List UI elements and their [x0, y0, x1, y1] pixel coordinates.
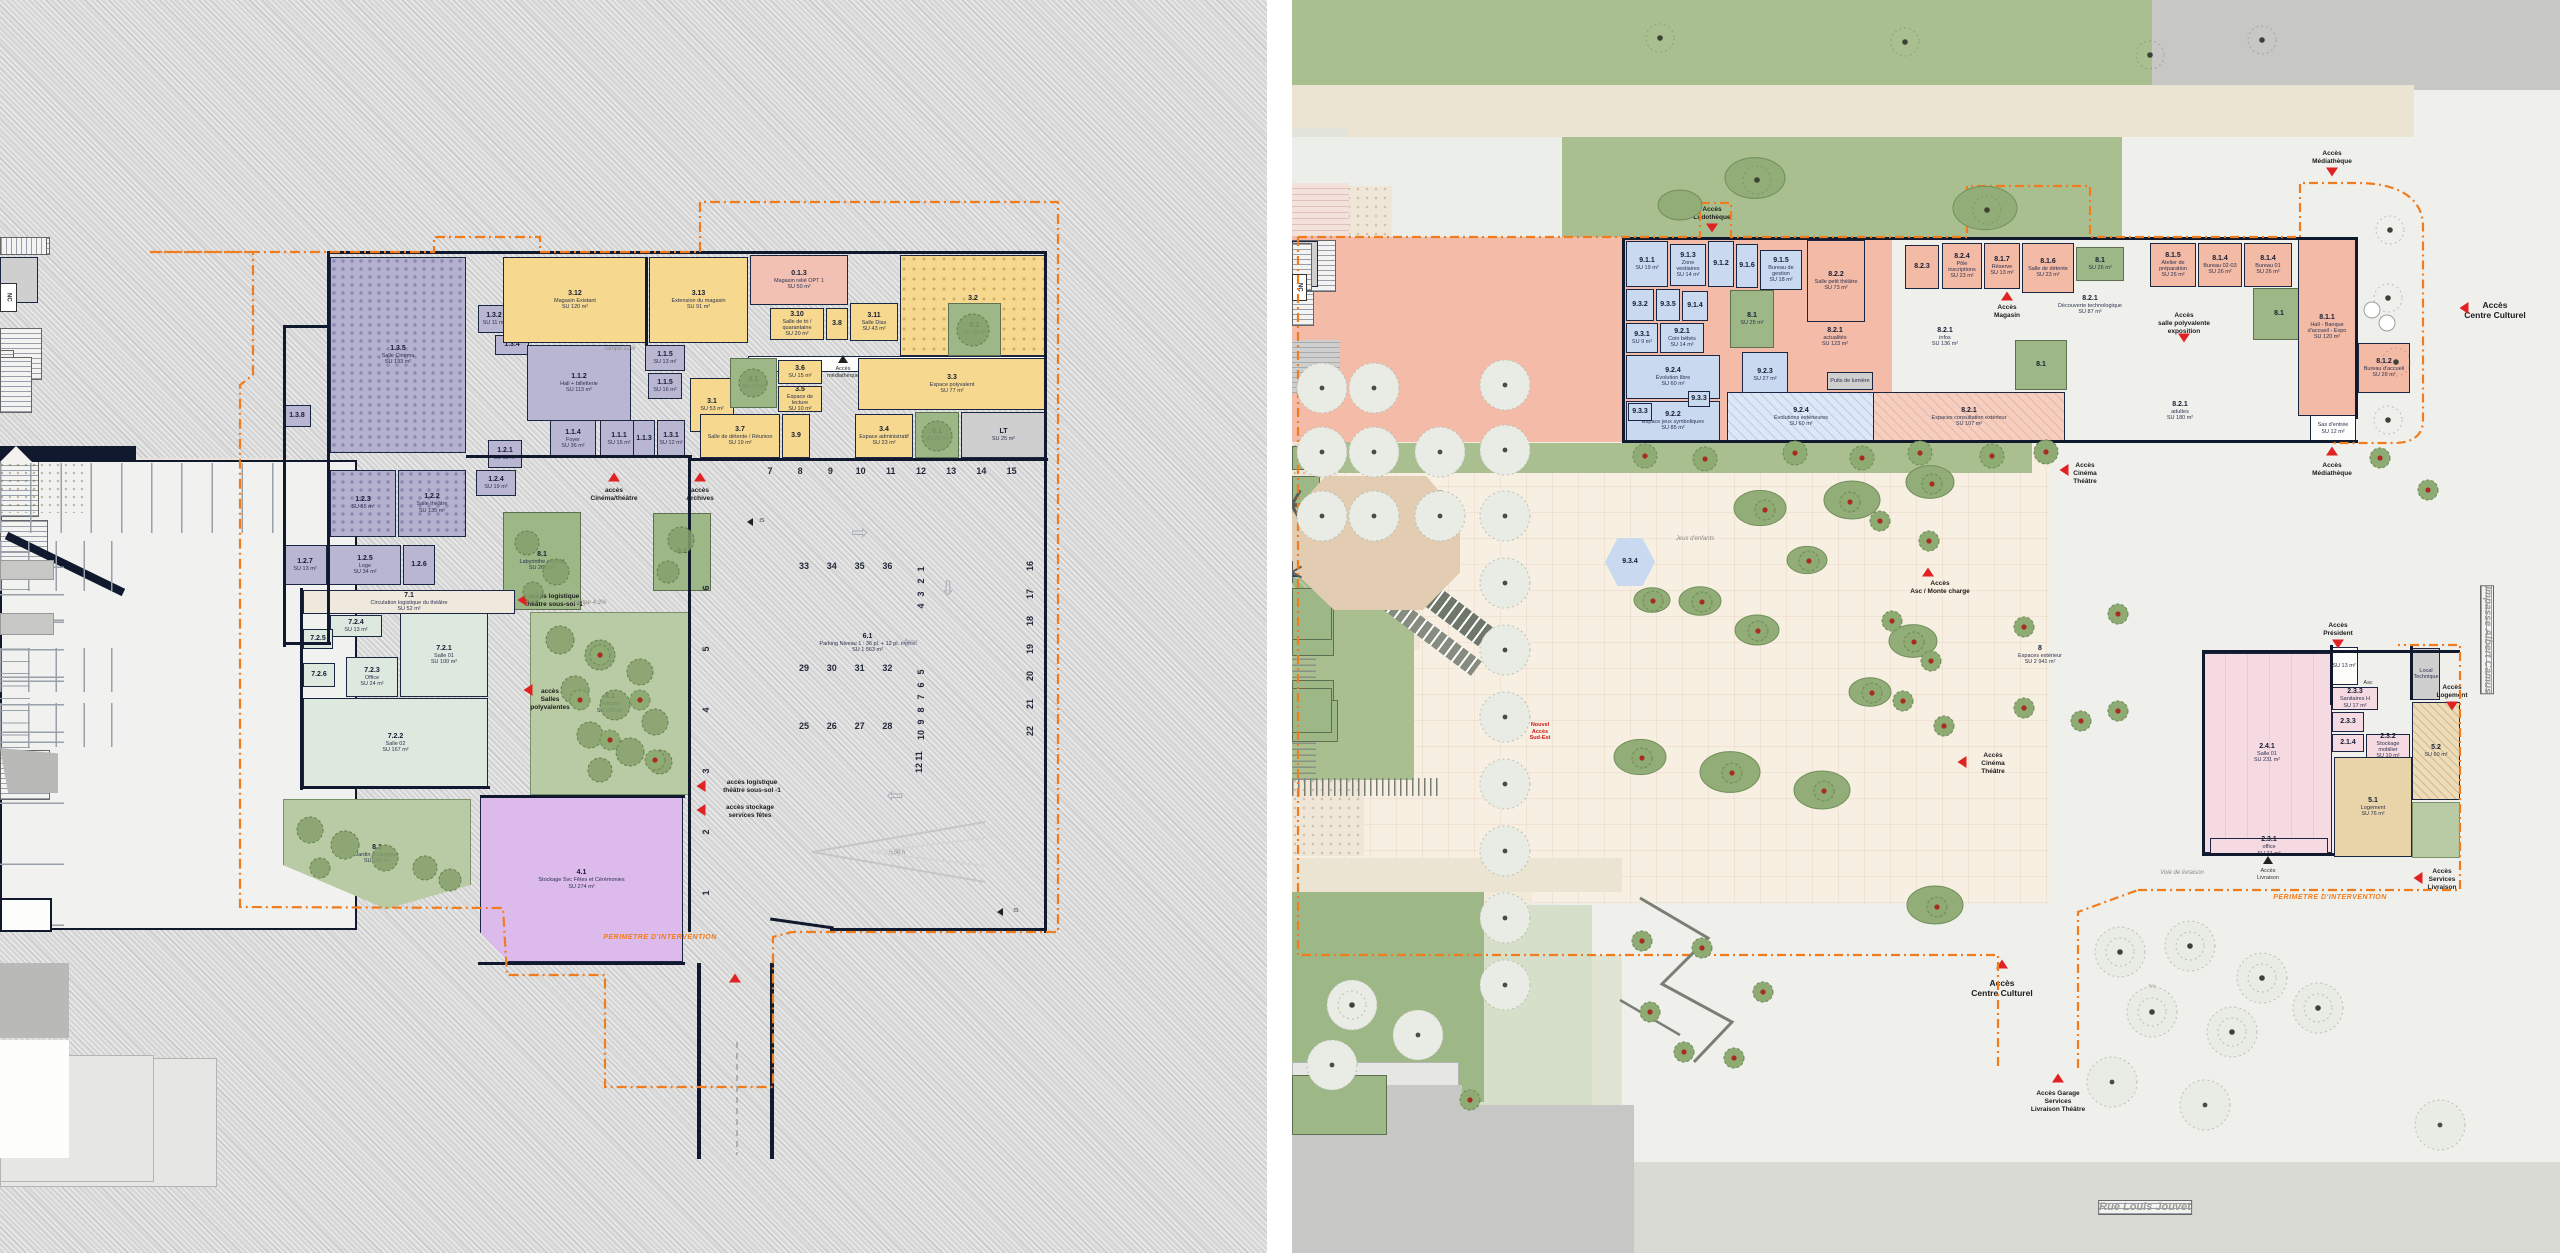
room-label-name: Salle Dias [862, 320, 887, 326]
play-structure-icon [1292, 561, 1303, 583]
tree-icon [2374, 406, 2402, 434]
panel-divider [1267, 0, 1292, 1253]
room-b915: 9.1.5Bureau de gestionSU 18 m² [1760, 250, 1802, 290]
room-label-area: SU 76 m² [2361, 811, 2385, 817]
room-label-area: SU 27 m² [1753, 376, 1776, 382]
room-label-area: SU 10 m² [779, 406, 821, 412]
room-label-area: SU 274 m² [538, 884, 624, 890]
room-s232: 2.3.2Stockage mobilierSU 10 m² [2366, 734, 2410, 758]
room-label-area: SU 12 m² [659, 440, 682, 446]
room-label-name: Puits de lumière [1830, 378, 1869, 384]
room-label-area: SU 26 m² [925, 436, 948, 442]
room-r115a: 1.1.5SU 13 m² [645, 345, 685, 371]
room-patM: 8.1SU 26 m² [2076, 247, 2124, 281]
room-label-area: SU 60 m² [1656, 381, 1691, 387]
room-label-area: SU 60 m² [1774, 421, 1828, 427]
tree-icon [2138, 998, 2166, 1026]
hatch-strip [0, 560, 54, 580]
room-label-id: 7.2.1 [431, 645, 457, 653]
room-label-id: 3.7 [708, 426, 773, 434]
room-label-name: Salle 01 [2254, 751, 2280, 757]
room-label-area: SU 15 m² [788, 373, 811, 379]
tree-icon [2293, 983, 2343, 1033]
room-label-area: SU 12 m² [2318, 429, 2349, 435]
room-label-area: SU 60 m² [2424, 752, 2447, 758]
label-acces_log2: accès logistique théâtre sous-sol -1 [723, 779, 781, 795]
room-label-area: SU 23 m² [1943, 273, 1981, 279]
room-label-id: 1.2.6 [411, 561, 427, 569]
room-s817: 8.1.7RéserveSU 13 m² [1984, 243, 2020, 289]
room-label-id: 1.1.5 [653, 351, 676, 359]
room-label-name: Jardin écologique [355, 852, 398, 858]
label-acc_serv: Accès Services Livraison [2428, 868, 2457, 891]
parking-number: 18 [1025, 616, 1035, 626]
access-triangle-icon [838, 355, 848, 363]
room-label-area: SU 77 m² [930, 388, 975, 394]
parking-number: 8 [798, 466, 803, 476]
room-label-name: Salle de détente / Réunion [708, 434, 773, 440]
wall [688, 458, 691, 932]
room-label-area: SU 15 m² [607, 440, 630, 446]
room-b935: 9.3.5 [1656, 289, 1680, 321]
parking-number: 6 [916, 682, 926, 687]
room-label-id: 3.6 [788, 365, 811, 373]
room-r127: 1.2.7SU 13 m² [283, 545, 327, 585]
parking-number: 2 [701, 829, 711, 834]
room-label-name: adultes [2167, 409, 2193, 415]
room-y313: 3.13Extension du magasinSU 91 m² [649, 257, 748, 343]
access-triangle-icon [1706, 224, 1718, 233]
parking-number: 27 [855, 721, 865, 731]
room-s811: 8.1.1Hall - Banque d'accueil - ExpoSU 12… [2298, 238, 2356, 416]
planter [1292, 446, 1316, 470]
access-triangle-icon [697, 804, 706, 816]
room-y311: 3.11Salle DiasSU 43 m² [850, 303, 898, 341]
parking-number: 17 [1025, 588, 1035, 598]
garden-strip [1292, 443, 2032, 473]
room-b921: 9.2.1Coin bébésSU 14 m² [1660, 323, 1704, 353]
label-acc_ccE: Accès Centre Culturel [2464, 300, 2525, 320]
room-label-name: Salle 01 [431, 653, 457, 659]
wall [2355, 237, 2358, 419]
tree-icon [2218, 1018, 2246, 1046]
drive-arrow-icon: ⇩ [940, 576, 957, 600]
label-acc_garage: Accès Garage Services Livraison Théâtre [2031, 1090, 2085, 1113]
room-label-area: SU 26 m² [2088, 265, 2111, 271]
access-triangle-icon [524, 684, 533, 696]
room-label-id: 8.2.3 [1914, 263, 1930, 271]
basement-plan-panel: 1.3.5Salle CinémaSU 193 m²1.2.3SU 65 m²1… [0, 0, 1267, 1253]
room-label-name: Circulation logistique du théâtre [370, 600, 447, 606]
playground [1292, 476, 1460, 610]
room-s816: 8.1.6Salle de détenteSU 23 m² [2022, 243, 2074, 293]
room-sasS: Sas d'entréeSU 12 m² [2310, 415, 2356, 442]
room-s822: 8.2.2Salle petit théâtreSU 73 m² [1807, 240, 1865, 322]
room-label-id: 9.2.4 [1774, 407, 1828, 415]
wall [688, 458, 1048, 461]
parking-number: 9 [916, 720, 926, 725]
room-label-id: 8.1 [597, 693, 623, 701]
room-label-id: 8.1 [677, 548, 687, 556]
parking-number: 36 [882, 561, 892, 571]
balustrade [1292, 778, 1442, 796]
room-label-area: SU 120 m² [554, 304, 596, 310]
walk-north [1292, 85, 2414, 137]
room-label-area: SU 231 m² [2254, 757, 2280, 763]
parking-number: 32 [882, 663, 892, 673]
room-label-area: SU 19 m² [1635, 265, 1658, 271]
room-r112: 1.1.2Hall + billetterieSU 113 m² [527, 345, 631, 421]
hatch-strip [0, 613, 54, 635]
parking-number: 5 [701, 646, 711, 651]
label-perimetre: PERIMETRE D'INTERVENTION [2273, 894, 2387, 902]
access-triangle-icon [2052, 1074, 2064, 1083]
room-label-name: Salle de tri / quarantaine [771, 319, 823, 332]
room-label-name: Coin bébés [1668, 336, 1696, 342]
label-voie: Voie de livraison [2160, 870, 2204, 877]
room-patL: 8.1SU 25 m² [1730, 290, 1774, 348]
label-acc_medN: Accès Médiathèque [2312, 150, 2352, 166]
label-acc_asc: Accès Asc / Monte charge [1910, 580, 1970, 596]
parking-number: 6 [701, 585, 711, 590]
wall [478, 962, 685, 965]
room-r126: 1.2.6 [403, 545, 435, 585]
room-label-id: 9.1.2 [1713, 260, 1729, 268]
room-label-name: Espace administratif [859, 434, 909, 440]
room-label-id: 9.1.1 [1635, 257, 1658, 265]
room-label-id: 7.1 [370, 592, 447, 600]
room-label-id: 1.2.5 [353, 555, 376, 563]
room-label-name: Sanitaires H [2340, 696, 2370, 702]
room-label-area: SU 9 m² [1632, 339, 1652, 345]
room-label-area: SU 2 941 m² [2018, 659, 2062, 665]
room-b933a: 9.3.3 [1628, 403, 1652, 421]
room-g726: 7.2.6 [303, 663, 335, 687]
room-label-id: 0.1.3 [774, 270, 824, 278]
corridor-flare [0, 446, 32, 462]
room-label-name: Office [360, 675, 383, 681]
room-label-name: Évolution libre [1656, 375, 1691, 381]
room-label-name: Découverte technologique [2058, 303, 2122, 309]
wall [283, 325, 329, 328]
room-label-area: SU 26 m² [2151, 272, 2195, 278]
parking-number: 21 [1025, 698, 1035, 708]
room-label-area: SU 34 m² [353, 569, 376, 575]
access-triangle-icon [518, 594, 527, 606]
room-label-id: 3.12 [554, 290, 596, 298]
room-s821e: 8.2.1Espaces consultation extérieurSU 10… [1873, 392, 2065, 442]
room-label-id: 8.2.4 [1943, 253, 1981, 261]
room-b913: 9.1.3Zone vestiairesSU 14 m² [1670, 244, 1706, 286]
room-label-area: SU 135 m² [417, 508, 448, 514]
room-t52: 5.2SU 60 m² [2412, 702, 2460, 800]
dual-floor-plan-canvas: 1.3.5Salle CinémaSU 193 m²1.2.3SU 65 m²1… [0, 0, 2560, 1253]
room-label-area: SU 11 m² [483, 320, 506, 326]
room-label-area: SU 17 m² [2340, 703, 2370, 709]
wall [830, 928, 1047, 931]
room-p013: 0.1.3Magasin relié OPT 1SU 50 m² [750, 255, 848, 305]
room-label-area: SU 123 m² [1822, 341, 1848, 347]
parking-number: 33 [799, 561, 809, 571]
parking-number: 4 [701, 707, 711, 712]
room-label-name: Loge [353, 563, 376, 569]
room-label-id: 9.3.3 [1632, 408, 1648, 416]
room-label-area: SU 19 m² [708, 440, 773, 446]
room-s233a: 2.3.3Sanitaires HSU 17 m² [2332, 687, 2378, 710]
room-label-id: 8.2.2 [1815, 271, 1858, 279]
room-label-id: 9.3.2 [1632, 301, 1648, 309]
room-b933b: 9.3.3 [1688, 391, 1710, 407]
room-esp8: 8Espaces extérieurSU 2 941 m² [2000, 638, 2080, 672]
parking-number: 5 [916, 669, 926, 674]
room-label-id: 3.13 [671, 290, 725, 298]
room-label-area: SU 43 m² [862, 326, 887, 332]
tree-icon [1632, 931, 1652, 951]
parking-number: 3 [916, 591, 926, 596]
room-b924b: 9.2.4Évolutions extérieuresSU 60 m² [1727, 392, 1875, 442]
tree-icon [2087, 1057, 2137, 1107]
room-label-name: Espaces extérieur [2018, 653, 2062, 659]
room-label-area: SU 23 m² [859, 440, 909, 446]
room-label-id: 1.2.4 [484, 476, 507, 484]
room-label-area: SU 26 m² [2364, 372, 2405, 378]
label-acc_medS: Accès Médiathèque [2312, 462, 2352, 478]
room-label-id: 9.1.5 [1761, 257, 1801, 265]
tree-icon [2304, 994, 2332, 1022]
parking-number: 26 [827, 721, 837, 731]
wall [2410, 645, 2413, 700]
wall [2202, 650, 2205, 856]
access-triangle-icon [2060, 464, 2069, 476]
room-label-name: Espaces consultation extérieur [1932, 415, 2007, 421]
room-label-id: 7.2.2 [382, 733, 408, 741]
room-label-area: SU 18 m² [1761, 277, 1801, 283]
room-y33: 3.3Espace polyvalentSU 77 m² [858, 358, 1046, 410]
room-label-name: Atelier de préparation [2151, 260, 2195, 273]
access-triangle-icon [997, 908, 1003, 916]
wall [1622, 237, 2358, 240]
room-label-area: SU 113 m² [560, 387, 598, 393]
room-label-id: 8.1.4 [2203, 255, 2236, 263]
room-label-id: 8.1 [355, 844, 398, 852]
parking-number: 3 [701, 768, 711, 773]
room-r122: 1.2.2Salle théâtreSU 135 m² [398, 470, 466, 537]
parking-number: 8 [916, 707, 926, 712]
room-label-id: 8.1.1 [2299, 314, 2355, 322]
room-label-area: SU 87 m² [2058, 309, 2122, 315]
room-label-id: 2.3.3 [2340, 718, 2356, 726]
room-label-id: 3.3 [930, 374, 975, 382]
room-s824: 8.2.4Pôle inscriptionsSU 23 m² [1942, 243, 1982, 289]
room-label-area: SU 265 m² [520, 565, 565, 571]
label-perimetre: PERIMETRE D'INTERVENTION [603, 934, 717, 942]
exit-ramp [0, 963, 69, 1038]
room-label-name: Espace de lecture [779, 394, 821, 407]
tree-icon [2095, 927, 2145, 977]
room-label-name: Foyer [561, 437, 584, 443]
room-s821d: 8.2.1adultesSU 180 m² [2135, 395, 2225, 427]
parking-number: 10 [916, 730, 926, 740]
room-patG: 8.1 [2015, 340, 2067, 390]
room-label-id: 9.1.4 [1687, 302, 1703, 310]
room-label-name: Espace polyvalent [930, 382, 975, 388]
room-label-area: SU 27 m² [742, 384, 765, 390]
parking-number: 19 [1025, 643, 1035, 653]
parking-number: 7 [767, 466, 772, 476]
room-y39: 3.9 [782, 414, 810, 458]
parking-number: 13 [946, 466, 956, 476]
voie-livraison [1292, 858, 1622, 892]
room-label-id: 9.1.3 [1671, 252, 1705, 260]
room-label-id: 8.2.1 [2167, 401, 2193, 409]
room-label-area: SU 25 m² [992, 436, 1015, 442]
room-label-name: Bureau 01 [2255, 263, 2280, 269]
room-label-area: SU 180 m² [2167, 415, 2193, 421]
parking-number: 29 [799, 663, 809, 673]
room-label-name: Zone vestiaires [1671, 260, 1705, 273]
room-pa3: 8.1SU 25 m² [948, 303, 1001, 356]
parking-number: 4 [916, 603, 926, 608]
nc-box: NC [1292, 274, 1307, 301]
room-g721: 7.2.1Salle 01SU 100 m² [400, 613, 488, 697]
tree-icon [2207, 1007, 2257, 1057]
parking-number: 12 [916, 466, 926, 476]
room-label-area: SU 14 m² [1668, 342, 1696, 348]
room-label-area: SU 193 m² [382, 359, 415, 365]
tree-icon [2370, 448, 2390, 468]
planter [1292, 688, 1332, 733]
room-label-name: Local Technique [2413, 668, 2439, 681]
parking-number: 20 [1025, 671, 1035, 681]
room-label-area: SU 20 m² [771, 331, 823, 337]
drive-arrow-icon: ⇦ [887, 783, 904, 807]
room-label-id: 4.1 [538, 869, 624, 877]
wall [1044, 251, 1047, 933]
label-rue: Rue Louis Jouvet [2098, 1200, 2192, 1215]
room-label-id: 9.2.3 [1753, 368, 1776, 376]
room-label-id: 8.1 [742, 376, 765, 384]
tree-icon [2108, 604, 2128, 624]
room-label-area: SU 16 m² [653, 387, 676, 393]
room-label-id: 8.1.4 [2255, 255, 2280, 263]
label-acces_med: Accès médiathèque [827, 366, 859, 379]
parking-number: 9 [828, 466, 833, 476]
room-label-id: LT [992, 428, 1015, 436]
room-y310: 3.10Salle de tri / quarantaineSU 20 m² [770, 308, 824, 340]
room-t51: 5.1LogementSU 76 m² [2334, 757, 2412, 857]
room-label-id: 1.2.3 [351, 496, 374, 504]
tree-icon [1674, 1042, 1694, 1062]
room-label-id: 9.1.6 [1739, 262, 1755, 270]
room-label-id: 2.3.2 [2367, 733, 2409, 741]
lamp-icon [2379, 315, 2395, 331]
room-label-id: 5.2 [2424, 744, 2447, 752]
room-pa1: 8.1SU 27 m² [730, 358, 777, 408]
label-acces_salles: accès Salles polyvalentes [530, 688, 569, 711]
room-label-area: SU 136 m² [1932, 341, 1958, 347]
room-label-name: Bureau de gestion [1761, 265, 1801, 278]
room-ph241: 2.4.1Salle 01SU 231 m² [2202, 653, 2332, 853]
room-b931: 9.3.1SU 9 m² [1626, 323, 1658, 353]
room-label-name: Stockage mobilier [2367, 741, 2409, 754]
room-label-id: 1.1.1 [607, 432, 630, 440]
room-label-id: 7.2.3 [360, 667, 383, 675]
parking-number: 22 [1025, 726, 1035, 736]
access-triangle-icon [2414, 872, 2423, 884]
access-triangle-icon [2326, 447, 2338, 456]
room-label-area: SU 91 m² [671, 304, 725, 310]
access-triangle-icon [608, 473, 620, 482]
parking-number: 1 [916, 566, 926, 571]
room-label-id: 7.2.4 [344, 619, 367, 627]
room-label-id: 8.1.6 [2028, 258, 2068, 266]
dotted-zone [0, 463, 88, 513]
room-s214: 2.1.4 [2332, 734, 2364, 752]
access-triangle-icon [1958, 756, 1967, 768]
room-label-id: 3.11 [862, 312, 887, 320]
room-label-id: 8.1.5 [2151, 252, 2195, 260]
drive-arrow-icon: ⇨ [852, 520, 869, 544]
wall [770, 963, 774, 1159]
room-label-id: 1.2.7 [293, 558, 316, 566]
room-label-id: 3.4 [859, 426, 909, 434]
parking-number: 1 [701, 890, 711, 895]
label-rampe12: rampe 12% [605, 346, 636, 353]
room-label-name: Pôle inscriptions [1943, 261, 1981, 274]
tree-icon [2108, 701, 2128, 721]
label-nouvel: Nouvel Accès Sud-Est [1530, 722, 1551, 742]
room-r113: 1.1.3 [633, 420, 655, 458]
room-label-id: 8.2.1 [1822, 327, 1848, 335]
room-label-name: Bureau 02-03 [2203, 263, 2236, 269]
room-label-name: Sas d'entrée [2318, 422, 2349, 428]
room-s821b: 8.2.1actualitésSU 123 m² [1790, 322, 1880, 352]
room-label-id: 1.1.4 [561, 429, 584, 437]
room-label-area: SU 100 m² [431, 659, 457, 665]
room-label-id: 3.1 [700, 398, 723, 406]
parking-number: 15 [1007, 466, 1017, 476]
room-r114: 1.1.4FoyerSU 36 m² [550, 420, 596, 458]
room-label-id: 9.3.1 [1632, 331, 1652, 339]
label-acc_log: Accès Logement [2436, 684, 2467, 700]
parking-number: 34 [827, 561, 837, 571]
access-triangle-icon [2332, 640, 2344, 649]
label-acces_archives: accès Archives [686, 487, 713, 503]
tree-icon [2237, 953, 2287, 1003]
room-label-name: Extension du magasin [671, 298, 725, 304]
wall [283, 642, 331, 645]
room-label-area: SU 162 m² [355, 858, 398, 864]
room-y37: 3.7Salle de détente / RéunionSU 19 m² [700, 414, 780, 458]
room-b911: 9.1.1SU 19 m² [1626, 241, 1668, 287]
label-acc_cin2: Accès Cinéma Théâtre [1981, 752, 2004, 775]
room-y34: 3.4Espace administratifSU 23 m² [855, 414, 913, 458]
room-label-id: 8.2.1 [2058, 295, 2122, 303]
room-label-area: SU 167 m² [382, 747, 408, 753]
room-label-id: 8.1 [2274, 310, 2284, 318]
parking-number: 10 [856, 466, 866, 476]
parking-number: 11 [914, 751, 924, 761]
room-label-area: SU 50 m² [774, 284, 824, 290]
room-label-id: 1.3.2 [483, 312, 506, 320]
room-s814a: 8.1.4Bureau 02-03SU 26 m² [2198, 243, 2242, 287]
label-acc_ludo: Accès Ludothèque [1693, 206, 1730, 222]
tree-icon [1753, 982, 1773, 1002]
room-label-id: 1.3.5 [382, 345, 415, 353]
room-r115b: 1.1.5SU 16 m² [648, 373, 682, 399]
room-label-id: 1.1.3 [636, 435, 652, 443]
wall [300, 786, 490, 789]
